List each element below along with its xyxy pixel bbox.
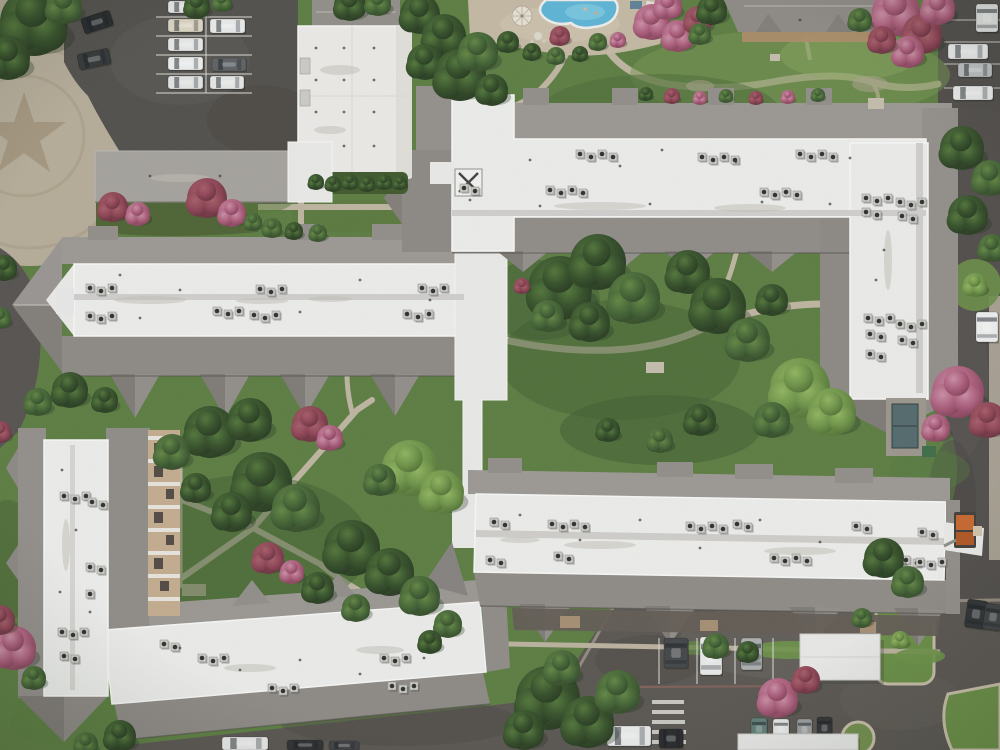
aerial-photo bbox=[0, 0, 1000, 750]
photo-grain-layer bbox=[0, 0, 1000, 750]
vignette-overlay bbox=[0, 0, 1000, 750]
aerial-photo-canvas bbox=[0, 0, 1000, 750]
